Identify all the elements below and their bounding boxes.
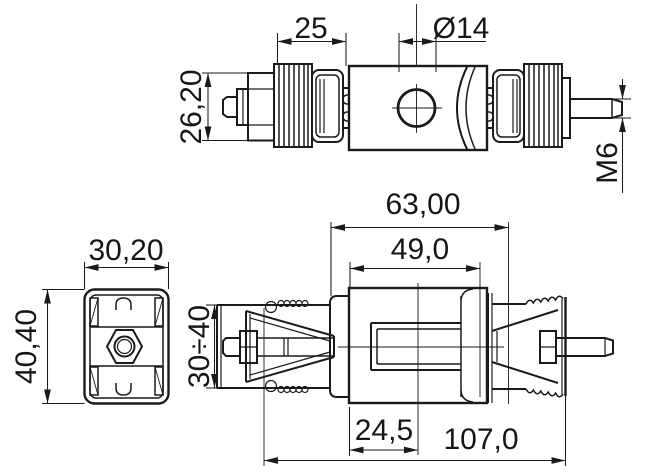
rod-flange xyxy=(562,78,570,138)
dim-hole-diameter-label: Ø14 xyxy=(433,12,490,45)
left-gland-body xyxy=(248,73,274,141)
dim-40-40: 40,40 xyxy=(10,290,85,404)
dim-63-00-label: 63,00 xyxy=(385,188,460,221)
dim-26-20-label: 26,20 xyxy=(175,69,208,144)
dim-m6: M6 xyxy=(591,79,631,193)
threaded-rod xyxy=(570,99,622,118)
end-view-outline xyxy=(85,290,169,404)
dim-25: 25 xyxy=(278,12,347,66)
dim-107-0-label: 107,0 xyxy=(443,423,518,456)
technical-drawing: 25 Ø14 26,20 M6 xyxy=(0,0,666,474)
dim-24-5: 24,5 xyxy=(350,407,419,456)
left-cone-slant xyxy=(246,357,334,382)
dim-30-20: 30,20 xyxy=(85,234,169,289)
right-thread-wave-bottom xyxy=(526,389,563,397)
side-view xyxy=(223,4,622,150)
dim-30-20-label: 30,20 xyxy=(88,234,163,267)
section-view xyxy=(217,283,613,455)
right-thread-wave-top xyxy=(526,296,563,304)
block-arc xyxy=(466,67,475,149)
left-sleeve xyxy=(330,296,349,397)
dim-49-0-label: 49,0 xyxy=(391,233,449,266)
left-spring-top xyxy=(266,301,309,313)
block-corner-arc xyxy=(461,391,473,402)
right-cone-slant xyxy=(492,310,558,331)
dim-30-40-range-label: 30÷40 xyxy=(183,305,216,388)
block-corner-arc xyxy=(461,289,473,300)
drawing-canvas: 25 Ø14 26,20 M6 xyxy=(0,0,666,474)
left-spring-bottom xyxy=(266,381,309,393)
end-hole-inner xyxy=(118,340,132,354)
dim-30-40-range: 30÷40 xyxy=(183,305,221,388)
left-cone-slant xyxy=(246,311,334,336)
dim-hole-diameter: Ø14 xyxy=(399,12,489,72)
end-tabs xyxy=(90,298,163,395)
left-stud xyxy=(223,97,237,117)
left-collar-ribs xyxy=(279,64,308,147)
dim-63-00: 63,00 xyxy=(331,188,509,404)
left-bolt-stud xyxy=(223,338,240,356)
end-view xyxy=(85,290,169,404)
dim-25-label: 25 xyxy=(294,12,327,45)
right-cone-slant xyxy=(492,362,558,383)
end-view-inner xyxy=(90,295,163,398)
dim-m6-label: M6 xyxy=(591,142,624,184)
dim-40-40-label: 40,40 xyxy=(10,309,43,384)
end-u-slot xyxy=(116,383,131,395)
end-arch xyxy=(116,298,131,310)
end-hex-nut xyxy=(107,330,142,363)
right-collar-ribs xyxy=(529,64,558,147)
dim-24-5-label: 24,5 xyxy=(355,414,413,447)
